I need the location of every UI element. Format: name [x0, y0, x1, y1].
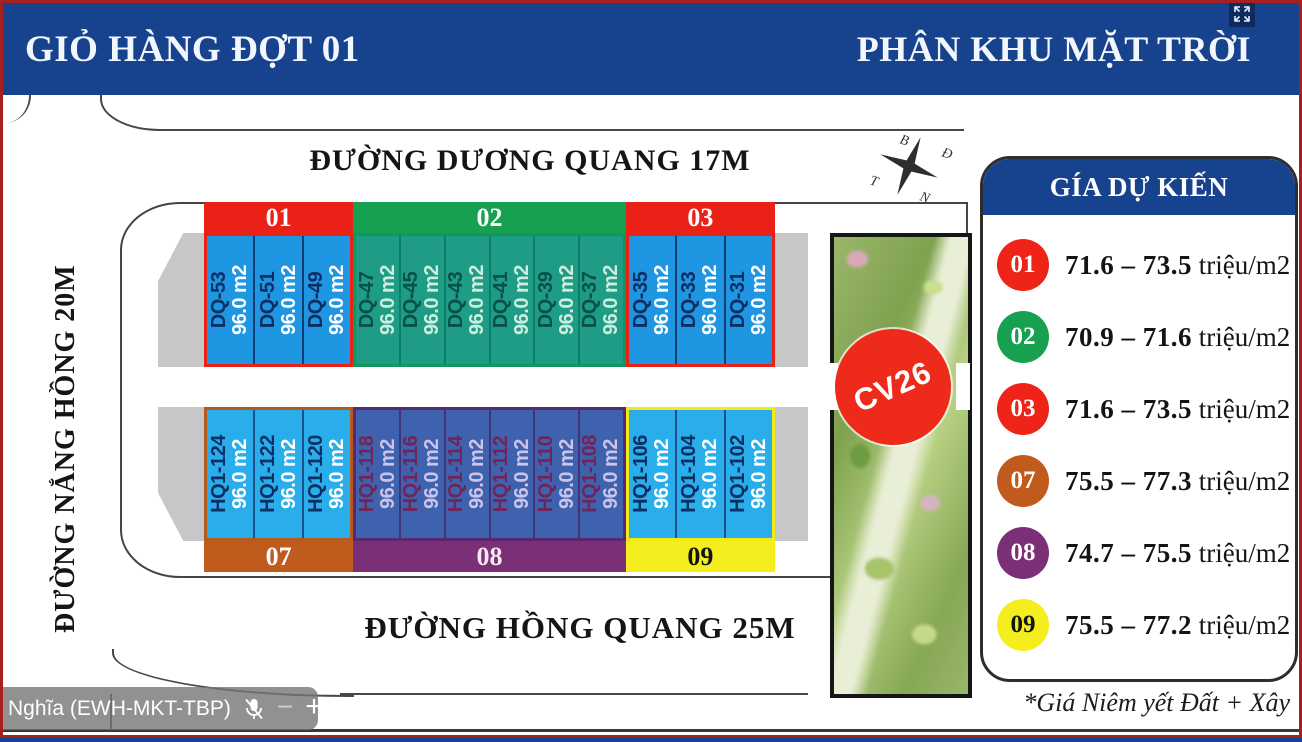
legend-row-07: 0775.5 – 77.3 triệu/m2 [997, 455, 1295, 507]
plot-area: 96.0 m2 [467, 265, 488, 335]
plot-area: 96.0 m2 [230, 439, 251, 509]
plot-area: 96.0 m2 [279, 439, 300, 509]
block-header-01: 01 [204, 202, 353, 233]
legend-price-01: 71.6 – 73.5 triệu/m2 [1065, 250, 1290, 281]
plot-DQ-43: DQ-4396.0 m2 [446, 236, 491, 364]
legend-row-09: 0975.5 – 77.2 triệu/m2 [997, 599, 1295, 651]
plot-area: 96.0 m2 [749, 265, 770, 335]
plot-code: HQ1-108 [580, 435, 601, 513]
plot-code: DQ-51 [258, 272, 279, 328]
plot-code: HQ1-114 [446, 436, 467, 513]
legend-circle-02: 02 [997, 311, 1049, 363]
plot-code: HQ1-120 [306, 435, 327, 513]
block-plots-03: DQ-3596.0 m2DQ-3396.0 m2DQ-3196.0 m2 [626, 233, 775, 367]
block-09: 09HQ1-10696.0 m2HQ1-10496.0 m2HQ1-10296.… [626, 407, 775, 572]
legend-circle-09: 09 [997, 599, 1049, 651]
block-plots-08: HQ1-11896.0 m2HQ1-11696.0 m2HQ1-11496.0 … [353, 407, 626, 541]
plot-area: 96.0 m2 [601, 439, 622, 509]
legend-row-01: 0171.6 – 73.5 triệu/m2 [997, 239, 1295, 291]
plot-area: 96.0 m2 [467, 439, 488, 509]
legend-row-03: 0371.6 – 73.5 triệu/m2 [997, 383, 1295, 435]
road-edge-south [340, 693, 808, 695]
plot-area: 96.0 m2 [700, 439, 721, 509]
plot-area: 96.0 m2 [422, 265, 443, 335]
plot-area: 96.0 m2 [422, 439, 443, 509]
block-07: 07HQ1-12496.0 m2HQ1-12296.0 m2HQ1-12096.… [204, 407, 353, 572]
legend-title: GÍA DỰ KIẾN [983, 159, 1295, 215]
gray-parcel [158, 407, 204, 541]
plot-row-north: 01DQ-5396.0 m2DQ-5196.0 m2DQ-4996.0 m202… [158, 202, 808, 367]
plot-area: 96.0 m2 [557, 265, 578, 335]
block-plots-09: HQ1-10696.0 m2HQ1-10496.0 m2HQ1-10296.0 … [626, 407, 775, 541]
street-label-duong-quang: ĐƯỜNG DƯƠNG QUANG 17M [240, 144, 820, 178]
gray-parcel [775, 407, 808, 541]
plot-DQ-45: DQ-4596.0 m2 [401, 236, 446, 364]
plot-HQ1-124: HQ1-12496.0 m2 [207, 410, 255, 538]
road-corner-arc [5, 95, 31, 123]
plot-code: HQ1-116 [401, 436, 422, 513]
park-badge-label: CV26 [848, 354, 937, 420]
plot-code: HQ1-106 [631, 435, 652, 513]
compass-south-label: N [917, 189, 932, 204]
plot-HQ1-120: HQ1-12096.0 m2 [304, 410, 350, 538]
park-badge: CV26 [835, 329, 951, 445]
plot-area: 96.0 m2 [327, 265, 348, 335]
compass-east-label: Đ [939, 145, 954, 163]
legend-circle-03: 03 [997, 383, 1049, 435]
block-plots-01: DQ-5396.0 m2DQ-5196.0 m2DQ-4996.0 m2 [204, 233, 353, 367]
plot-code: HQ1-124 [209, 435, 230, 513]
plot-code: DQ-43 [446, 272, 467, 328]
plot-code: DQ-45 [401, 272, 422, 328]
legend-row-08: 0874.7 – 75.5 triệu/m2 [997, 527, 1295, 579]
plot-HQ1-106: HQ1-10696.0 m2 [629, 410, 677, 538]
plot-DQ-39: DQ-3996.0 m2 [535, 236, 580, 364]
plot-area: 96.0 m2 [652, 265, 673, 335]
plot-HQ1-108: HQ1-10896.0 m2 [580, 410, 623, 538]
plot-HQ1-112: HQ1-11296.0 m2 [491, 410, 536, 538]
plot-area: 96.0 m2 [378, 265, 399, 335]
title-banner: GIỎ HÀNG ĐỢT 01 PHÂN KHU MẶT TRỜI [3, 3, 1299, 95]
block-08: 08HQ1-11896.0 m2HQ1-11696.0 m2HQ1-11496.… [353, 407, 626, 572]
block-header-09: 09 [626, 541, 775, 572]
compass-north-label: B [898, 133, 911, 150]
plot-HQ1-104: HQ1-10496.0 m2 [677, 410, 725, 538]
legend-circle-07: 07 [997, 455, 1049, 507]
plot-area: 96.0 m2 [652, 439, 673, 509]
plot-area: 96.0 m2 [700, 265, 721, 335]
plot-code: DQ-39 [536, 272, 557, 328]
presenter-name: Nghĩa (EWH-MKT-TBP) [8, 697, 231, 721]
block-02: 02DQ-4796.0 m2DQ-4596.0 m2DQ-4396.0 m2DQ… [353, 202, 626, 367]
road-gap-right [956, 363, 970, 410]
legend-row-02: 0270.9 – 71.6 triệu/m2 [997, 311, 1295, 363]
block-header-07: 07 [204, 541, 353, 572]
plot-code: DQ-53 [209, 272, 230, 328]
plot-area: 96.0 m2 [601, 265, 622, 335]
legend-price-07: 75.5 – 77.3 triệu/m2 [1065, 466, 1290, 497]
block-header-02: 02 [353, 202, 626, 233]
legend-price-08: 74.7 – 75.5 triệu/m2 [1065, 538, 1290, 569]
plot-code: DQ-31 [728, 272, 749, 328]
block-plots-07: HQ1-12496.0 m2HQ1-12296.0 m2HQ1-12096.0 … [204, 407, 353, 541]
plot-code: DQ-33 [679, 272, 700, 328]
plot-DQ-49: DQ-4996.0 m2 [304, 236, 350, 364]
plot-DQ-35: DQ-3596.0 m2 [629, 236, 677, 364]
subdivision-title: PHÂN KHU MẶT TRỜI [857, 28, 1299, 70]
plot-DQ-33: DQ-3396.0 m2 [677, 236, 725, 364]
plot-code: DQ-35 [631, 272, 652, 328]
legend-price-02: 70.9 – 71.6 triệu/m2 [1065, 322, 1290, 353]
plot-HQ1-110: HQ1-11096.0 m2 [535, 410, 580, 538]
zoom-out-button[interactable]: − [277, 691, 293, 723]
plot-DQ-51: DQ-5196.0 m2 [255, 236, 303, 364]
plot-code: HQ1-102 [728, 435, 749, 513]
plot-HQ1-118: HQ1-11896.0 m2 [356, 410, 401, 538]
street-label-hong-quang: ĐƯỜNG HỒNG QUANG 25M [300, 610, 860, 646]
plot-HQ1-114: HQ1-11496.0 m2 [446, 410, 491, 538]
plot-area: 96.0 m2 [512, 439, 533, 509]
plot-HQ1-116: HQ1-11696.0 m2 [401, 410, 446, 538]
block-01: 01DQ-5396.0 m2DQ-5196.0 m2DQ-4996.0 m2 [204, 202, 353, 367]
block-plots-02: DQ-4796.0 m2DQ-4596.0 m2DQ-4396.0 m2DQ-4… [353, 233, 626, 367]
block-header-03: 03 [626, 202, 775, 233]
plot-area: 96.0 m2 [279, 265, 300, 335]
plot-DQ-37: DQ-3796.0 m2 [580, 236, 623, 364]
plot-code: HQ1-110 [536, 436, 557, 513]
plot-area: 96.0 m2 [327, 439, 348, 509]
compass-west-label: T [868, 174, 881, 191]
block-03: 03DQ-3596.0 m2DQ-3396.0 m2DQ-3196.0 m2 [626, 202, 775, 367]
park-foliage-image [830, 233, 972, 698]
block-header-08: 08 [353, 541, 626, 572]
plot-code: HQ1-118 [357, 436, 378, 513]
plot-DQ-41: DQ-4196.0 m2 [491, 236, 536, 364]
plot-code: DQ-41 [491, 272, 512, 328]
plot-HQ1-102: HQ1-10296.0 m2 [726, 410, 772, 538]
road-edge-top [100, 95, 964, 131]
price-legend-panel: GÍA DỰ KIẾN 0171.6 – 73.5 triệu/m20270.9… [980, 156, 1298, 682]
bottom-blue-strip [0, 738, 1302, 742]
plot-DQ-31: DQ-3196.0 m2 [726, 236, 772, 364]
fullscreen-button[interactable] [1229, 1, 1255, 27]
park-area [830, 233, 972, 698]
plot-code: HQ1-122 [258, 435, 279, 513]
gray-parcel [158, 233, 204, 367]
legend-price-09: 75.5 – 77.2 triệu/m2 [1065, 610, 1290, 641]
plot-area: 96.0 m2 [230, 265, 251, 335]
street-label-nang-hong: ĐƯỜNG NẮNG HỒNG 20M [50, 233, 100, 665]
price-note: *Giá Niêm yết Đất + Xây [1023, 688, 1290, 718]
plot-DQ-53: DQ-5396.0 m2 [207, 236, 255, 364]
screenshare-name-overlay: Nghĩa (EWH-MKT-TBP) − + [0, 687, 318, 730]
plot-area: 96.0 m2 [749, 439, 770, 509]
plot-code: DQ-49 [306, 272, 327, 328]
gray-parcel [775, 233, 808, 367]
plot-area: 96.0 m2 [512, 265, 533, 335]
plot-area: 96.0 m2 [557, 439, 578, 509]
plot-code: HQ1-112 [491, 436, 512, 513]
plot-code: HQ1-104 [679, 435, 700, 513]
plot-HQ1-122: HQ1-12296.0 m2 [255, 410, 303, 538]
mic-muted-icon[interactable] [243, 697, 265, 721]
plot-code: DQ-37 [580, 272, 601, 328]
expand-arrows-icon [1233, 5, 1251, 23]
plot-DQ-47: DQ-4796.0 m2 [356, 236, 401, 364]
plot-code: DQ-47 [357, 272, 378, 328]
page-title: GIỎ HÀNG ĐỢT 01 [3, 28, 360, 71]
plot-area: 96.0 m2 [378, 439, 399, 509]
compass-rose-icon: B Đ T N [863, 128, 955, 209]
legend-circle-08: 08 [997, 527, 1049, 579]
legend-price-03: 71.6 – 73.5 triệu/m2 [1065, 394, 1290, 425]
zoom-in-button[interactable]: + [305, 690, 323, 724]
plot-row-south: 07HQ1-12496.0 m2HQ1-12296.0 m2HQ1-12096.… [158, 407, 808, 572]
legend-circle-01: 01 [997, 239, 1049, 291]
